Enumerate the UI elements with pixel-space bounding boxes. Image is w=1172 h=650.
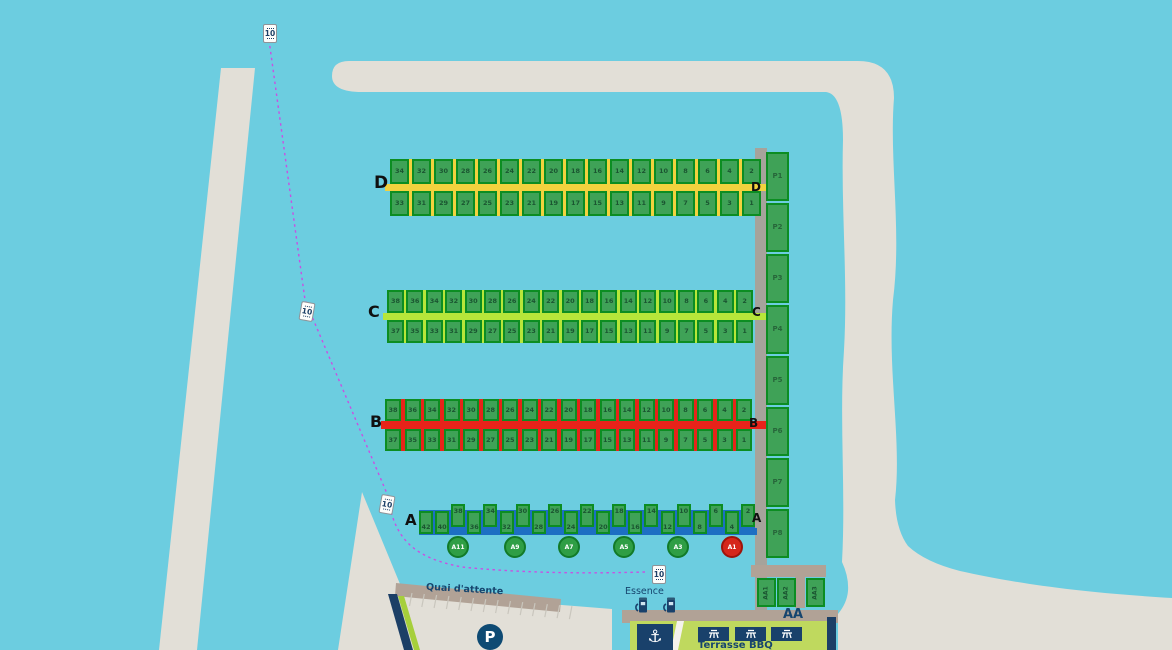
berth-C4[interactable]: 4 bbox=[717, 290, 734, 313]
berth-C14[interactable]: 14 bbox=[620, 290, 637, 313]
speed-limit-sign: 10 bbox=[652, 565, 666, 584]
berth-B19[interactable]: 19 bbox=[561, 429, 577, 451]
berth-B10[interactable]: 10 bbox=[658, 399, 674, 421]
berth-D14[interactable]: 14 bbox=[610, 159, 629, 184]
berth-C18[interactable]: 18 bbox=[581, 290, 598, 313]
berth-D32[interactable]: 32 bbox=[412, 159, 431, 184]
berth-D8[interactable]: 8 bbox=[676, 159, 695, 184]
berth-A8[interactable]: 8 bbox=[693, 511, 707, 534]
berth-D1[interactable]: 1 bbox=[742, 191, 761, 216]
berth-C17[interactable]: 17 bbox=[581, 320, 598, 343]
berth-P3[interactable]: P3 bbox=[766, 254, 789, 303]
berth-B28[interactable]: 28 bbox=[483, 399, 499, 421]
berth-D13[interactable]: 13 bbox=[610, 191, 629, 216]
berth-C16[interactable]: 16 bbox=[600, 290, 617, 313]
berth-D24[interactable]: 24 bbox=[500, 159, 519, 184]
aa-slip-label: AA2 bbox=[784, 586, 790, 599]
berth-B1[interactable]: 1 bbox=[736, 429, 752, 451]
berth-B27[interactable]: 27 bbox=[483, 429, 499, 451]
berth-D29[interactable]: 29 bbox=[434, 191, 453, 216]
harbour-office: ⚓ bbox=[637, 624, 673, 650]
berth-D11[interactable]: 11 bbox=[632, 191, 651, 216]
fuel-pump-icon bbox=[662, 596, 677, 614]
buoy-A7[interactable]: A7 bbox=[558, 536, 580, 558]
berth-A6[interactable]: 6 bbox=[709, 504, 723, 527]
buoy-A9[interactable]: A9 bbox=[504, 536, 526, 558]
speed-limit-value: 10 bbox=[265, 30, 275, 38]
berth-C12[interactable]: 12 bbox=[639, 290, 656, 313]
bbq-icon bbox=[735, 627, 766, 641]
berth-B17[interactable]: 17 bbox=[580, 429, 596, 451]
berth-D22[interactable]: 22 bbox=[522, 159, 541, 184]
berth-D3[interactable]: 3 bbox=[720, 191, 739, 216]
berth-C7[interactable]: 7 bbox=[678, 320, 695, 343]
berth-A30[interactable]: 30 bbox=[516, 504, 530, 527]
buoy-A1[interactable]: A1 bbox=[721, 536, 743, 558]
berth-C22[interactable]: 22 bbox=[542, 290, 559, 313]
fuel-pump-icon bbox=[634, 596, 649, 614]
berth-C26[interactable]: 26 bbox=[503, 290, 520, 313]
berth-C38[interactable]: 38 bbox=[387, 290, 404, 313]
berth-A40[interactable]: 40 bbox=[435, 511, 449, 534]
berth-P5[interactable]: P5 bbox=[766, 356, 789, 405]
berth-A16[interactable]: 16 bbox=[628, 511, 642, 534]
berth-D10[interactable]: 10 bbox=[654, 159, 673, 184]
dock-D-label-left: D bbox=[374, 175, 388, 192]
berth-B22[interactable]: 22 bbox=[541, 399, 557, 421]
berth-D6[interactable]: 6 bbox=[698, 159, 717, 184]
berth-C21[interactable]: 21 bbox=[542, 320, 559, 343]
berth-C13[interactable]: 13 bbox=[620, 320, 637, 343]
berth-P1[interactable]: P1 bbox=[766, 152, 789, 201]
berth-B35[interactable]: 35 bbox=[405, 429, 421, 451]
wave-mark bbox=[267, 38, 274, 39]
berth-C24[interactable]: 24 bbox=[523, 290, 540, 313]
berth-B15[interactable]: 15 bbox=[600, 429, 616, 451]
berth-P8[interactable]: P8 bbox=[766, 509, 789, 558]
bbq-icon bbox=[698, 627, 729, 641]
buoy-A5[interactable]: A5 bbox=[613, 536, 635, 558]
dock-C-label-right: C bbox=[752, 306, 761, 318]
berth-C6[interactable]: 6 bbox=[697, 290, 714, 313]
berth-C2[interactable]: 2 bbox=[736, 290, 753, 313]
berth-D15[interactable]: 15 bbox=[588, 191, 607, 216]
speed-limit-sign: 10 bbox=[378, 494, 395, 515]
berth-B9[interactable]: 9 bbox=[658, 429, 674, 451]
speed-limit-sign: 10 bbox=[263, 24, 277, 43]
berth-A24[interactable]: 24 bbox=[564, 511, 578, 534]
bbq-icon bbox=[771, 627, 802, 641]
berth-B4[interactable]: 4 bbox=[717, 399, 733, 421]
berth-C19[interactable]: 19 bbox=[562, 320, 579, 343]
berth-A20[interactable]: 20 bbox=[596, 511, 610, 534]
berth-P6[interactable]: P6 bbox=[766, 407, 789, 456]
berth-A28[interactable]: 28 bbox=[532, 511, 546, 534]
berth-C37[interactable]: 37 bbox=[387, 320, 404, 343]
berth-C35[interactable]: 35 bbox=[406, 320, 423, 343]
berth-D20[interactable]: 20 bbox=[544, 159, 563, 184]
berth-A14[interactable]: 14 bbox=[644, 504, 658, 527]
berth-D26[interactable]: 26 bbox=[478, 159, 497, 184]
dock-B-label-left: B bbox=[370, 414, 382, 430]
terrace-label: Terrasse BBQ bbox=[698, 641, 818, 650]
berth-A10[interactable]: 10 bbox=[677, 504, 691, 527]
berth-A34[interactable]: 34 bbox=[483, 504, 497, 527]
berth-B29[interactable]: 29 bbox=[463, 429, 479, 451]
berth-A42[interactable]: 42 bbox=[419, 511, 433, 534]
berth-C34[interactable]: 34 bbox=[426, 290, 443, 313]
berth-D23[interactable]: 23 bbox=[500, 191, 519, 216]
berth-D17[interactable]: 17 bbox=[566, 191, 585, 216]
berth-D9[interactable]: 9 bbox=[654, 191, 673, 216]
berth-P7[interactable]: P7 bbox=[766, 458, 789, 507]
dock-A-label-right: A bbox=[752, 512, 761, 524]
berth-AA3[interactable]: AA3 bbox=[806, 578, 825, 607]
berth-B12[interactable]: 12 bbox=[639, 399, 655, 421]
berth-B37[interactable]: 37 bbox=[385, 429, 401, 451]
berth-P4[interactable]: P4 bbox=[766, 305, 789, 354]
berth-B20[interactable]: 20 bbox=[561, 399, 577, 421]
berth-B34[interactable]: 34 bbox=[424, 399, 440, 421]
berth-C15[interactable]: 15 bbox=[600, 320, 617, 343]
berth-A32[interactable]: 32 bbox=[500, 511, 514, 534]
berth-C36[interactable]: 36 bbox=[406, 290, 423, 313]
berth-B6[interactable]: 6 bbox=[697, 399, 713, 421]
berth-C32[interactable]: 32 bbox=[445, 290, 462, 313]
berth-B16[interactable]: 16 bbox=[600, 399, 616, 421]
berth-B26[interactable]: 26 bbox=[502, 399, 518, 421]
dock-C-label-left: C bbox=[368, 304, 380, 320]
berth-B30[interactable]: 30 bbox=[463, 399, 479, 421]
speed-limit-sign: 10 bbox=[298, 301, 315, 322]
berth-C8[interactable]: 8 bbox=[678, 290, 695, 313]
berth-B25[interactable]: 25 bbox=[502, 429, 518, 451]
berth-C33[interactable]: 33 bbox=[426, 320, 443, 343]
berth-A36[interactable]: 36 bbox=[467, 511, 481, 534]
berth-C23[interactable]: 23 bbox=[523, 320, 540, 343]
wave-mark bbox=[383, 509, 390, 511]
parking-icon[interactable]: P bbox=[477, 624, 503, 650]
berth-D34[interactable]: 34 bbox=[390, 159, 409, 184]
berth-D30[interactable]: 30 bbox=[434, 159, 453, 184]
aa-dock-label: AA bbox=[783, 608, 803, 621]
berth-A22[interactable]: 22 bbox=[580, 504, 594, 527]
berth-A4[interactable]: 4 bbox=[725, 511, 739, 534]
berth-D19[interactable]: 19 bbox=[544, 191, 563, 216]
berth-B21[interactable]: 21 bbox=[541, 429, 557, 451]
berth-D4[interactable]: 4 bbox=[720, 159, 739, 184]
berth-D12[interactable]: 12 bbox=[632, 159, 651, 184]
berth-AA1[interactable]: AA1 bbox=[757, 578, 776, 607]
berth-D33[interactable]: 33 bbox=[390, 191, 409, 216]
berth-B23[interactable]: 23 bbox=[522, 429, 538, 451]
speed-limit-value: 10 bbox=[654, 571, 664, 579]
dock-B-label-right: B bbox=[749, 417, 758, 429]
berth-C31[interactable]: 31 bbox=[445, 320, 462, 343]
berth-P2[interactable]: P2 bbox=[766, 203, 789, 252]
berth-C30[interactable]: 30 bbox=[465, 290, 482, 313]
aa-slip-label: AA1 bbox=[764, 586, 770, 599]
berth-A38[interactable]: 38 bbox=[451, 504, 465, 527]
parking-letter: P bbox=[485, 628, 496, 646]
berth-D21[interactable]: 21 bbox=[522, 191, 541, 216]
docks-layer: 3432302826242220181614121086423331292725… bbox=[0, 0, 1172, 650]
berth-B24[interactable]: 24 bbox=[522, 399, 538, 421]
buoy-A3[interactable]: A3 bbox=[667, 536, 689, 558]
marina-map: 3432302826242220181614121086423331292725… bbox=[0, 0, 1172, 650]
berth-C5[interactable]: 5 bbox=[697, 320, 714, 343]
berth-D16[interactable]: 16 bbox=[588, 159, 607, 184]
berth-C9[interactable]: 9 bbox=[659, 320, 676, 343]
berth-B32[interactable]: 32 bbox=[444, 399, 460, 421]
berth-B36[interactable]: 36 bbox=[405, 399, 421, 421]
berth-C28[interactable]: 28 bbox=[484, 290, 501, 313]
berth-D31[interactable]: 31 bbox=[412, 191, 431, 216]
berth-B31[interactable]: 31 bbox=[444, 429, 460, 451]
anchor-icon: ⚓ bbox=[647, 629, 662, 646]
berth-B8[interactable]: 8 bbox=[678, 399, 694, 421]
wave-mark bbox=[303, 316, 310, 318]
berth-B11[interactable]: 11 bbox=[639, 429, 655, 451]
berth-D7[interactable]: 7 bbox=[676, 191, 695, 216]
berth-B14[interactable]: 14 bbox=[619, 399, 635, 421]
dock-A-label-left: A bbox=[405, 513, 417, 528]
berth-D18[interactable]: 18 bbox=[566, 159, 585, 184]
dock-D-label-right: D bbox=[751, 181, 761, 193]
berth-B18[interactable]: 18 bbox=[580, 399, 596, 421]
berth-B3[interactable]: 3 bbox=[717, 429, 733, 451]
berth-B38[interactable]: 38 bbox=[385, 399, 401, 421]
berth-D5[interactable]: 5 bbox=[698, 191, 717, 216]
berth-D27[interactable]: 27 bbox=[456, 191, 475, 216]
berth-C25[interactable]: 25 bbox=[503, 320, 520, 343]
berth-A26[interactable]: 26 bbox=[548, 504, 562, 527]
wave-mark bbox=[656, 579, 663, 580]
berth-C29[interactable]: 29 bbox=[465, 320, 482, 343]
berth-B7[interactable]: 7 bbox=[678, 429, 694, 451]
berth-C10[interactable]: 10 bbox=[659, 290, 676, 313]
berth-D25[interactable]: 25 bbox=[478, 191, 497, 216]
berth-C20[interactable]: 20 bbox=[562, 290, 579, 313]
berth-C3[interactable]: 3 bbox=[717, 320, 734, 343]
berth-B5[interactable]: 5 bbox=[697, 429, 713, 451]
berth-C11[interactable]: 11 bbox=[639, 320, 656, 343]
berth-C27[interactable]: 27 bbox=[484, 320, 501, 343]
aa-slip-label: AA3 bbox=[813, 586, 819, 599]
berth-B33[interactable]: 33 bbox=[424, 429, 440, 451]
berth-C1[interactable]: 1 bbox=[736, 320, 753, 343]
berth-AA2[interactable]: AA2 bbox=[777, 578, 796, 607]
berth-D28[interactable]: 28 bbox=[456, 159, 475, 184]
buoy-A11[interactable]: A11 bbox=[447, 536, 469, 558]
berth-A18[interactable]: 18 bbox=[612, 504, 626, 527]
berth-A12[interactable]: 12 bbox=[661, 511, 675, 534]
berth-B13[interactable]: 13 bbox=[619, 429, 635, 451]
